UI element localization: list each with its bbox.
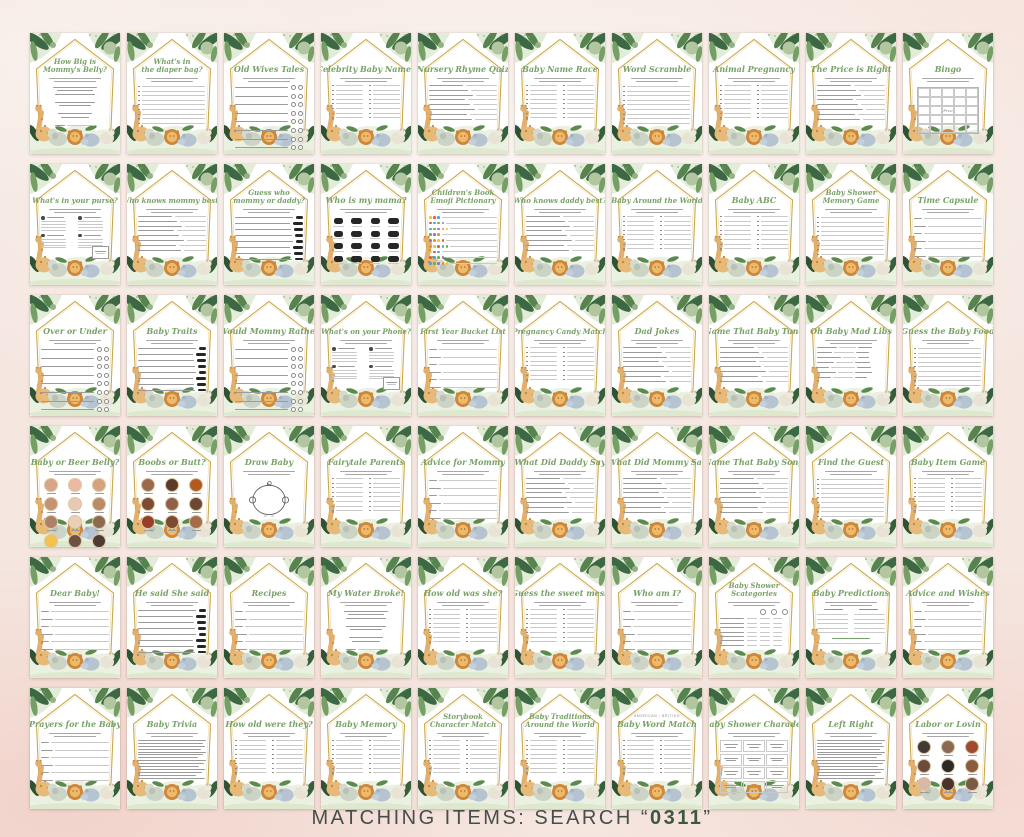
- card-body: [138, 347, 206, 388]
- card-body: [720, 347, 788, 388]
- game-card-8: Animal Pregnancy: [709, 33, 799, 154]
- card-body: [332, 85, 400, 126]
- card-title-block: Who knows daddy best?: [522, 177, 598, 205]
- game-card-36: What Did Daddy Say: [515, 426, 605, 547]
- card-title: He said She said: [135, 589, 209, 598]
- card-body: [720, 85, 788, 126]
- card-title: Find the Guest: [818, 458, 884, 467]
- card-title: Prayers for the Baby: [30, 720, 120, 729]
- card-body: [235, 740, 303, 781]
- card-instructions: [821, 602, 881, 606]
- game-card-12: Who knows mommy best?: [127, 164, 217, 285]
- card-title-block: Baby or Beer Belly?: [37, 439, 113, 467]
- card-title-block: Baby ShowerMemory Game: [813, 177, 889, 205]
- card-title: Old Wives Tales: [234, 65, 304, 74]
- card-title-block: Baby ABC: [716, 177, 792, 205]
- card-instructions: [821, 78, 881, 82]
- game-card-14: Who is my mama?: [321, 164, 411, 285]
- card-body: [720, 216, 788, 257]
- card-title-block: What's on your Phone?: [328, 308, 404, 336]
- card-title: Boobs or Butt?: [138, 458, 205, 467]
- card-body: [817, 347, 885, 388]
- card-body: [41, 347, 109, 388]
- game-card-28: Name That Baby Tune: [709, 295, 799, 416]
- game-card-51: Prayers for the Baby: [30, 688, 120, 809]
- card-title-block: Old Wives Tales: [231, 46, 307, 74]
- card-body: [138, 85, 206, 126]
- card-instructions: [530, 602, 590, 606]
- card-title: Baby Trivia: [147, 720, 197, 729]
- card-title: Advice for Mommy: [421, 458, 505, 467]
- card-title: Guess the Baby Food: [903, 327, 993, 336]
- card-title-block: Baby Trivia: [134, 701, 210, 729]
- card-title-block: AMERICAN / BRITISHBaby Word Match: [619, 701, 695, 729]
- card-title-block: Over or Under: [37, 308, 113, 336]
- card-body: [623, 740, 691, 781]
- card-title-block: What's in your purse?: [37, 177, 113, 205]
- card-title-block: Recipes: [231, 570, 307, 598]
- card-body: [623, 85, 691, 126]
- card-title: My Water Broke!: [328, 589, 404, 598]
- card-instructions: [433, 733, 493, 737]
- game-card-49: Baby Predictions: [806, 557, 896, 678]
- card-instructions: [239, 602, 299, 606]
- card-title: Advice and Wishes: [906, 589, 989, 598]
- card-title-block: Labor or Lovin: [910, 701, 986, 729]
- card-instructions: [433, 340, 493, 344]
- card-body: [623, 478, 691, 519]
- card-instructions: [530, 209, 590, 213]
- card-instructions: [142, 471, 202, 475]
- card-body: [623, 216, 691, 257]
- card-body: [138, 478, 206, 519]
- game-card-34: Fairytale Parents: [321, 426, 411, 547]
- card-title-line2: the diaper bag?: [141, 66, 202, 74]
- card-title: Who is my mama?: [325, 196, 406, 205]
- card-title-line2: Emoji Pictionary: [430, 197, 495, 205]
- game-card-27: Dad Jokes: [612, 295, 702, 416]
- card-instructions: [336, 602, 396, 606]
- game-card-53: How old were they?: [224, 688, 314, 809]
- card-instructions: [918, 471, 978, 475]
- card-instructions: [142, 78, 202, 82]
- card-title-block: What Did Daddy Say: [522, 439, 598, 467]
- card-body: [429, 216, 497, 257]
- card-title: Over or Under: [43, 327, 107, 336]
- game-card-39: Find the Guest: [806, 426, 896, 547]
- card-instructions: [724, 733, 784, 737]
- card-instructions: [918, 733, 978, 737]
- card-instructions: [336, 733, 396, 737]
- card-instructions: [239, 209, 299, 213]
- card-title: What's on your Phone?: [321, 328, 411, 336]
- card-title-block: Advice for Mommy: [425, 439, 501, 467]
- card-title: Oh Baby Mad Libs: [810, 327, 892, 336]
- game-card-46: Guess the sweet mess: [515, 557, 605, 678]
- card-title-block: Advice and Wishes: [910, 570, 986, 598]
- game-card-2: What's inthe diaper bag?: [127, 33, 217, 154]
- card-title-block: The Price is Right: [813, 46, 889, 74]
- card-title: Recipes: [252, 589, 287, 598]
- card-title-block: StorybookCharacter Match: [425, 701, 501, 729]
- card-title-block: Who am I?: [619, 570, 695, 598]
- card-title: Baby Memory: [335, 720, 397, 729]
- card-instructions: [627, 602, 687, 606]
- card-body: [429, 85, 497, 126]
- game-card-9: The Price is Right: [806, 33, 896, 154]
- game-card-6: Baby Name Race: [515, 33, 605, 154]
- game-card-41: Dear Baby!: [30, 557, 120, 678]
- card-body: [526, 478, 594, 519]
- card-body: [41, 740, 109, 781]
- card-title-overline: AMERICAN / BRITISH: [634, 714, 680, 718]
- card-body: [817, 85, 885, 126]
- card-title: Animal Pregnancy: [713, 65, 795, 74]
- matching-items-caption: MATCHING ITEMS: SEARCH “0311”: [0, 807, 1024, 830]
- card-body: [429, 740, 497, 781]
- card-body: [526, 609, 594, 650]
- card-title-line2: Memory Game: [823, 197, 880, 205]
- card-instructions: [433, 78, 493, 82]
- card-instructions: [724, 602, 784, 606]
- game-card-35: Advice for Mommy: [418, 426, 508, 547]
- card-instructions: [724, 340, 784, 344]
- card-body: [914, 347, 982, 388]
- card-title-block: How old were they?: [231, 701, 307, 729]
- card-body: [41, 216, 109, 257]
- card-instructions: [336, 340, 396, 344]
- card-title: Baby Traits: [147, 327, 198, 336]
- game-card-32: Boobs or Butt?: [127, 426, 217, 547]
- card-title: Nursery Rhyme Quiz: [418, 65, 508, 74]
- card-title-block: Baby Around the World: [619, 177, 695, 205]
- card-title: Baby Around the World: [612, 197, 702, 205]
- card-title-block: What's inthe diaper bag?: [134, 46, 210, 74]
- card-instructions: [45, 602, 105, 606]
- game-card-40: Baby Item Game: [903, 426, 993, 547]
- game-card-45: How old was she?: [418, 557, 508, 678]
- card-body: [332, 740, 400, 781]
- card-title: Baby Item Game: [911, 458, 985, 467]
- game-card-44: My Water Broke!: [321, 557, 411, 678]
- card-title-block: Celebrity Baby Names: [328, 46, 404, 74]
- card-title-block: Would Mommy Rather: [231, 308, 307, 336]
- game-card-54: Baby Memory: [321, 688, 411, 809]
- card-title-block: Children's BookEmoji Pictionary: [425, 177, 501, 205]
- card-title-block: Baby Traits: [134, 308, 210, 336]
- card-body: [526, 740, 594, 781]
- card-body: Free: [914, 85, 982, 126]
- card-title-block: Who is my mama?: [328, 177, 404, 205]
- card-instructions: [724, 471, 784, 475]
- game-card-17: Baby Around the World: [612, 164, 702, 285]
- card-instructions: [627, 471, 687, 475]
- card-body: [817, 609, 885, 650]
- game-card-29: Oh Baby Mad Libs: [806, 295, 896, 416]
- game-card-19: Baby ShowerMemory Game: [806, 164, 896, 285]
- game-card-42: He said She said: [127, 557, 217, 678]
- game-card-21: Over or Under: [30, 295, 120, 416]
- game-card-47: Who am I?: [612, 557, 702, 678]
- card-body: [429, 478, 497, 519]
- card-instructions: [433, 602, 493, 606]
- card-instructions: [724, 78, 784, 82]
- game-card-59: Left Right: [806, 688, 896, 809]
- card-title: First Year Bucket List: [420, 328, 505, 336]
- card-instructions: [530, 733, 590, 737]
- game-card-16: Who knows daddy best?: [515, 164, 605, 285]
- game-card-13: Guess whomommy or daddy?: [224, 164, 314, 285]
- card-body: [914, 740, 982, 781]
- card-body: [817, 740, 885, 781]
- card-body: [720, 609, 788, 650]
- card-body: [817, 478, 885, 519]
- card-instructions: [45, 209, 105, 213]
- card-title: What Did Mommy Say: [612, 458, 702, 467]
- card-title: Baby Word Match: [617, 720, 697, 729]
- card-title-block: Baby Item Game: [910, 439, 986, 467]
- game-card-57: AMERICAN / BRITISHBaby Word Match: [612, 688, 702, 809]
- card-title-block: Left Right: [813, 701, 889, 729]
- game-card-38: Name That Baby Song: [709, 426, 799, 547]
- cards-grid: How Big isMommy's Belly?: [30, 33, 993, 809]
- card-title-line2: Character Match: [430, 721, 496, 729]
- card-title: How old was she?: [424, 589, 503, 598]
- card-title: Word Scramble: [623, 65, 692, 74]
- game-card-15: Children's BookEmoji Pictionary: [418, 164, 508, 285]
- game-card-60: Labor or Lovin: [903, 688, 993, 809]
- caption-suffix: ”: [703, 807, 712, 829]
- game-card-11: What's in your purse?: [30, 164, 120, 285]
- card-title: Pregnancy Candy Match: [515, 328, 605, 336]
- card-instructions: [239, 733, 299, 737]
- card-title-block: Baby TraditionsAround the World: [522, 701, 598, 729]
- card-instructions: [530, 471, 590, 475]
- card-body: [526, 85, 594, 126]
- game-card-52: Baby Trivia: [127, 688, 217, 809]
- card-body: [526, 347, 594, 388]
- card-body: [817, 216, 885, 257]
- card-instructions: [239, 471, 299, 475]
- card-instructions: [239, 340, 299, 344]
- card-instructions: [142, 733, 202, 737]
- card-title-block: How old was she?: [425, 570, 501, 598]
- card-title: Fairytale Parents: [328, 458, 404, 467]
- card-instructions: [336, 471, 396, 475]
- card-title-block: Oh Baby Mad Libs: [813, 308, 889, 336]
- card-title: What's in your purse?: [32, 197, 118, 205]
- card-title: Baby Predictions: [813, 589, 889, 598]
- total-score-box: [92, 246, 109, 259]
- card-title-line2: Mommy's Belly?: [43, 66, 107, 74]
- card-title: Left Right: [828, 720, 873, 729]
- card-title: Labor or Lovin: [915, 720, 981, 729]
- card-instructions: [530, 78, 590, 82]
- card-instructions: [530, 340, 590, 344]
- game-card-33: Draw Baby: [224, 426, 314, 547]
- card-instructions: [45, 340, 105, 344]
- card-instructions: [724, 209, 784, 213]
- card-title-block: First Year Bucket List: [425, 308, 501, 336]
- card-title: Would Mommy Rather: [224, 327, 314, 336]
- card-title-block: Prayers for the Baby: [37, 701, 113, 729]
- card-instructions: [142, 340, 202, 344]
- card-title-line2: Scategories: [731, 590, 777, 598]
- game-card-1: How Big isMommy's Belly?: [30, 33, 120, 154]
- card-body: [138, 609, 206, 650]
- card-body: [138, 216, 206, 257]
- card-body: [235, 216, 303, 257]
- card-title: Dear Baby!: [50, 589, 100, 598]
- card-instructions: [627, 209, 687, 213]
- card-title-block: Who knows mommy best?: [134, 177, 210, 205]
- card-instructions: [336, 78, 396, 82]
- card-title-block: Dad Jokes: [619, 308, 695, 336]
- card-instructions: [918, 209, 978, 213]
- card-body: [623, 609, 691, 650]
- card-title-block: Name That Baby Tune: [716, 308, 792, 336]
- card-title-block: Baby Name Race: [522, 46, 598, 74]
- card-title-block: How Big isMommy's Belly?: [37, 46, 113, 74]
- game-card-31: Baby or Beer Belly?: [30, 426, 120, 547]
- card-instructions: [918, 78, 978, 82]
- card-body: [429, 347, 497, 388]
- card-title-block: Baby ShowerScategories: [716, 570, 792, 598]
- card-title-block: Baby Memory: [328, 701, 404, 729]
- card-title: Bingo: [935, 65, 962, 74]
- card-body: [720, 478, 788, 519]
- game-card-24: What's on your Phone?: [321, 295, 411, 416]
- card-body: [526, 216, 594, 257]
- card-body: [332, 216, 400, 257]
- game-card-56: Baby TraditionsAround the World: [515, 688, 605, 809]
- card-title-block: Boobs or Butt?: [134, 439, 210, 467]
- card-title: The Price is Right: [811, 65, 892, 74]
- bingo-free-cell-label: Free: [943, 108, 952, 113]
- game-card-7: Word Scramble: [612, 33, 702, 154]
- card-body: [332, 609, 400, 650]
- card-title-block: Find the Guest: [813, 439, 889, 467]
- card-body: [235, 609, 303, 650]
- game-card-50: Advice and Wishes: [903, 557, 993, 678]
- card-body: [720, 740, 788, 781]
- game-card-10: BingoFree: [903, 33, 993, 154]
- card-title: Name That Baby Song: [709, 458, 799, 467]
- card-body: [429, 609, 497, 650]
- card-body: [235, 85, 303, 126]
- card-body: [332, 478, 400, 519]
- card-body: [41, 85, 109, 126]
- card-title-line2: mommy or daddy?: [233, 197, 305, 205]
- card-body: [235, 478, 303, 519]
- card-instructions: [918, 602, 978, 606]
- card-instructions: [821, 471, 881, 475]
- card-instructions: [918, 340, 978, 344]
- card-title: Name That Baby Tune: [709, 327, 799, 336]
- game-card-58: Baby Shower Charades: [709, 688, 799, 809]
- game-card-37: What Did Mommy Say: [612, 426, 702, 547]
- card-instructions: [45, 733, 105, 737]
- card-title-block: Animal Pregnancy: [716, 46, 792, 74]
- card-instructions: [336, 209, 396, 213]
- game-card-4: Celebrity Baby Names: [321, 33, 411, 154]
- card-instructions: [627, 733, 687, 737]
- card-title-block: He said She said: [134, 570, 210, 598]
- card-instructions: [142, 602, 202, 606]
- card-title: What Did Daddy Say: [515, 458, 605, 467]
- card-title-block: Word Scramble: [619, 46, 695, 74]
- card-title: Baby Name Race: [522, 65, 598, 74]
- card-body: [914, 609, 982, 650]
- card-instructions: [821, 340, 881, 344]
- card-body: [235, 347, 303, 388]
- card-title-line2: Around the World: [525, 721, 595, 729]
- card-title: Guess the sweet mess: [515, 589, 605, 598]
- card-title-block: Baby Predictions: [813, 570, 889, 598]
- card-title-block: Dear Baby!: [37, 570, 113, 598]
- card-body: [914, 216, 982, 257]
- card-title-block: Guess the sweet mess: [522, 570, 598, 598]
- card-instructions: [142, 209, 202, 213]
- card-title: Baby Shower Charades: [709, 720, 799, 729]
- card-title-block: What Did Mommy Say: [619, 439, 695, 467]
- card-body: [914, 478, 982, 519]
- card-title: Draw Baby: [245, 458, 293, 467]
- game-card-43: Recipes: [224, 557, 314, 678]
- card-title: Who am I?: [633, 589, 681, 598]
- card-instructions: [627, 340, 687, 344]
- total-score-box: [383, 377, 400, 390]
- caption-prefix: MATCHING ITEMS: SEARCH “: [311, 807, 650, 829]
- game-card-5: Nursery Rhyme Quiz: [418, 33, 508, 154]
- game-card-26: Pregnancy Candy Match: [515, 295, 605, 416]
- card-title: Dad Jokes: [635, 327, 680, 336]
- card-title: Baby ABC: [732, 196, 776, 205]
- card-body: [41, 478, 109, 519]
- card-title-block: Time Capsule: [910, 177, 986, 205]
- game-card-3: Old Wives Tales: [224, 33, 314, 154]
- card-title: Who knows daddy best?: [515, 197, 605, 205]
- card-instructions: [239, 78, 299, 82]
- card-instructions: [627, 78, 687, 82]
- game-card-48: Baby ShowerScategories: [709, 557, 799, 678]
- card-title: Celebrity Baby Names: [321, 65, 411, 74]
- game-card-23: Would Mommy Rather: [224, 295, 314, 416]
- game-card-30: Guess the Baby Food: [903, 295, 993, 416]
- game-card-18: Baby ABC: [709, 164, 799, 285]
- card-title-block: Guess whomommy or daddy?: [231, 177, 307, 205]
- card-title: Time Capsule: [918, 196, 979, 205]
- card-instructions: [45, 471, 105, 475]
- card-body: [41, 609, 109, 650]
- card-title-block: Fairytale Parents: [328, 439, 404, 467]
- card-title-block: Draw Baby: [231, 439, 307, 467]
- card-body: [623, 347, 691, 388]
- card-title-block: Nursery Rhyme Quiz: [425, 46, 501, 74]
- card-title-block: Guess the Baby Food: [910, 308, 986, 336]
- game-card-22: Baby Traits: [127, 295, 217, 416]
- card-title: Baby or Beer Belly?: [31, 458, 120, 467]
- card-instructions: [433, 471, 493, 475]
- card-body: [138, 740, 206, 781]
- card-instructions: [821, 733, 881, 737]
- baby-head-outline-drawing: [237, 478, 301, 519]
- game-card-20: Time Capsule: [903, 164, 993, 285]
- game-card-55: StorybookCharacter Match: [418, 688, 508, 809]
- card-title-block: Name That Baby Song: [716, 439, 792, 467]
- card-title-block: My Water Broke!: [328, 570, 404, 598]
- card-instructions: [45, 78, 105, 82]
